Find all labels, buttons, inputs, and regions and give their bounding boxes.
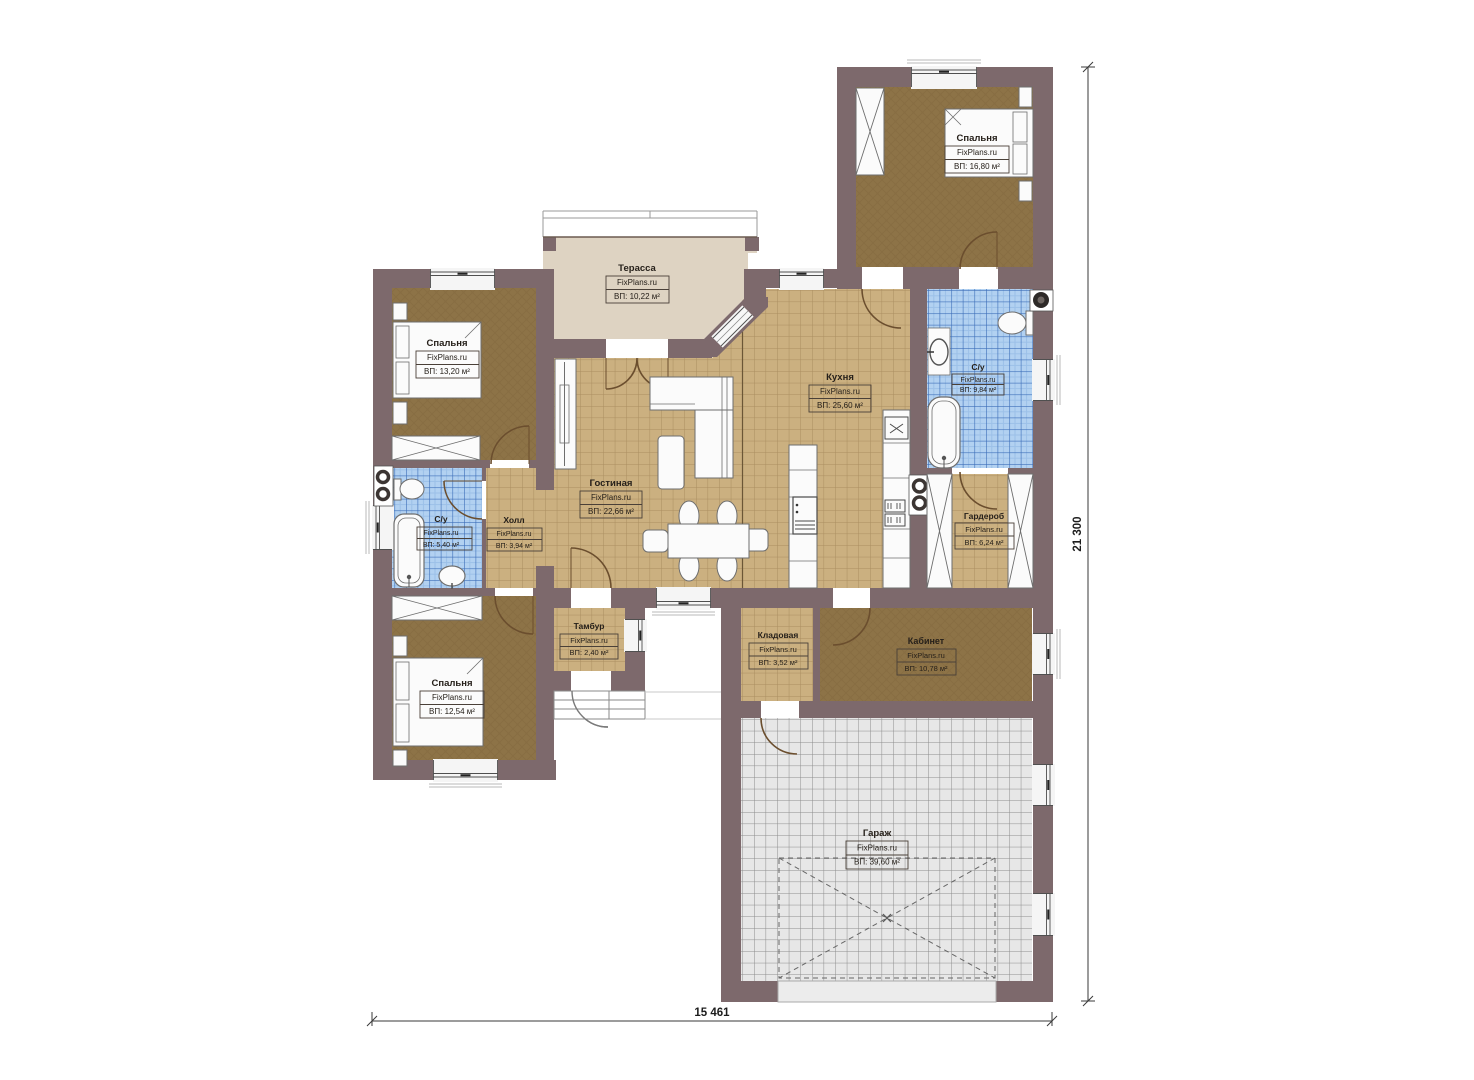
svg-text:FixPlans.ru: FixPlans.ru: [617, 278, 657, 287]
svg-text:FixPlans.ru: FixPlans.ru: [570, 636, 608, 645]
svg-text:FixPlans.ru: FixPlans.ru: [960, 377, 995, 384]
svg-text:Кладовая: Кладовая: [758, 630, 799, 640]
svg-text:Спальня: Спальня: [426, 338, 467, 349]
svg-text:FixPlans.ru: FixPlans.ru: [427, 353, 467, 362]
svg-text:Гардероб: Гардероб: [964, 511, 1004, 521]
svg-text:FixPlans.ru: FixPlans.ru: [759, 645, 797, 654]
svg-text:FixPlans.ru: FixPlans.ru: [591, 493, 631, 502]
svg-text:Терасса: Терасса: [618, 263, 656, 274]
svg-text:ВП: 13,20 м²: ВП: 13,20 м²: [424, 367, 470, 376]
svg-text:FixPlans.ru: FixPlans.ru: [820, 387, 860, 396]
svg-text:ВП: 5,40 м²: ВП: 5,40 м²: [423, 542, 460, 549]
svg-text:ВП: 12,54 м²: ВП: 12,54 м²: [429, 707, 475, 716]
svg-text:Кухня: Кухня: [826, 372, 854, 383]
svg-text:ВП: 39,60 м²: ВП: 39,60 м²: [854, 858, 900, 867]
svg-text:Спальня: Спальня: [956, 133, 997, 144]
svg-text:ВП: 9,84 м²: ВП: 9,84 м²: [960, 387, 997, 394]
svg-text:ВП: 22,66 м²: ВП: 22,66 м²: [588, 507, 634, 516]
svg-text:FixPlans.ru: FixPlans.ru: [965, 525, 1003, 534]
svg-text:FixPlans.ru: FixPlans.ru: [496, 531, 531, 538]
svg-text:ВП: 16,80 м²: ВП: 16,80 м²: [954, 162, 1000, 171]
svg-text:С/у: С/у: [971, 362, 985, 372]
svg-text:ВП: 2,40 м²: ВП: 2,40 м²: [570, 648, 609, 657]
svg-text:С/у: С/у: [434, 514, 448, 524]
svg-text:Гостиная: Гостиная: [590, 478, 633, 489]
svg-text:Холл: Холл: [503, 515, 524, 525]
svg-text:Тамбур: Тамбур: [574, 621, 605, 631]
svg-text:FixPlans.ru: FixPlans.ru: [857, 844, 897, 853]
svg-text:ВП: 25,60 м²: ВП: 25,60 м²: [817, 401, 863, 410]
svg-text:ВП: 6,24 м²: ВП: 6,24 м²: [965, 538, 1004, 547]
svg-text:FixPlans.ru: FixPlans.ru: [423, 530, 458, 537]
svg-text:Кабинет: Кабинет: [908, 636, 945, 646]
svg-text:ВП: 3,52 м²: ВП: 3,52 м²: [759, 658, 798, 667]
svg-text:ВП: 10,22 м²: ВП: 10,22 м²: [614, 292, 660, 301]
svg-text:FixPlans.ru: FixPlans.ru: [907, 651, 945, 660]
svg-text:21 300: 21 300: [1072, 516, 1084, 551]
svg-text:Гараж: Гараж: [863, 828, 892, 839]
svg-text:15 461: 15 461: [694, 1007, 730, 1019]
svg-text:Спальня: Спальня: [431, 678, 472, 689]
svg-text:FixPlans.ru: FixPlans.ru: [957, 148, 997, 157]
svg-text:ВП: 3,94 м²: ВП: 3,94 м²: [496, 543, 533, 550]
svg-text:ВП: 10,78 м²: ВП: 10,78 м²: [904, 664, 948, 673]
svg-text:FixPlans.ru: FixPlans.ru: [432, 693, 472, 702]
